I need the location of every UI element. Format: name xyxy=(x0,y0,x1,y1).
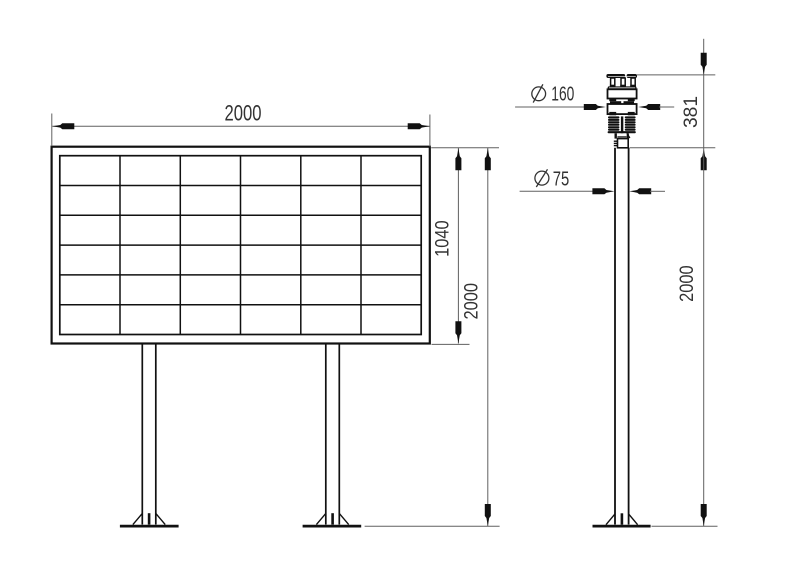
svg-text:75: 75 xyxy=(553,168,570,191)
svg-text:2000: 2000 xyxy=(677,265,698,302)
svg-text:2000: 2000 xyxy=(225,101,262,126)
svg-text:1040: 1040 xyxy=(432,220,453,257)
svg-text:160: 160 xyxy=(551,82,574,105)
svg-text:381: 381 xyxy=(680,96,702,128)
svg-text:2000: 2000 xyxy=(462,283,483,320)
